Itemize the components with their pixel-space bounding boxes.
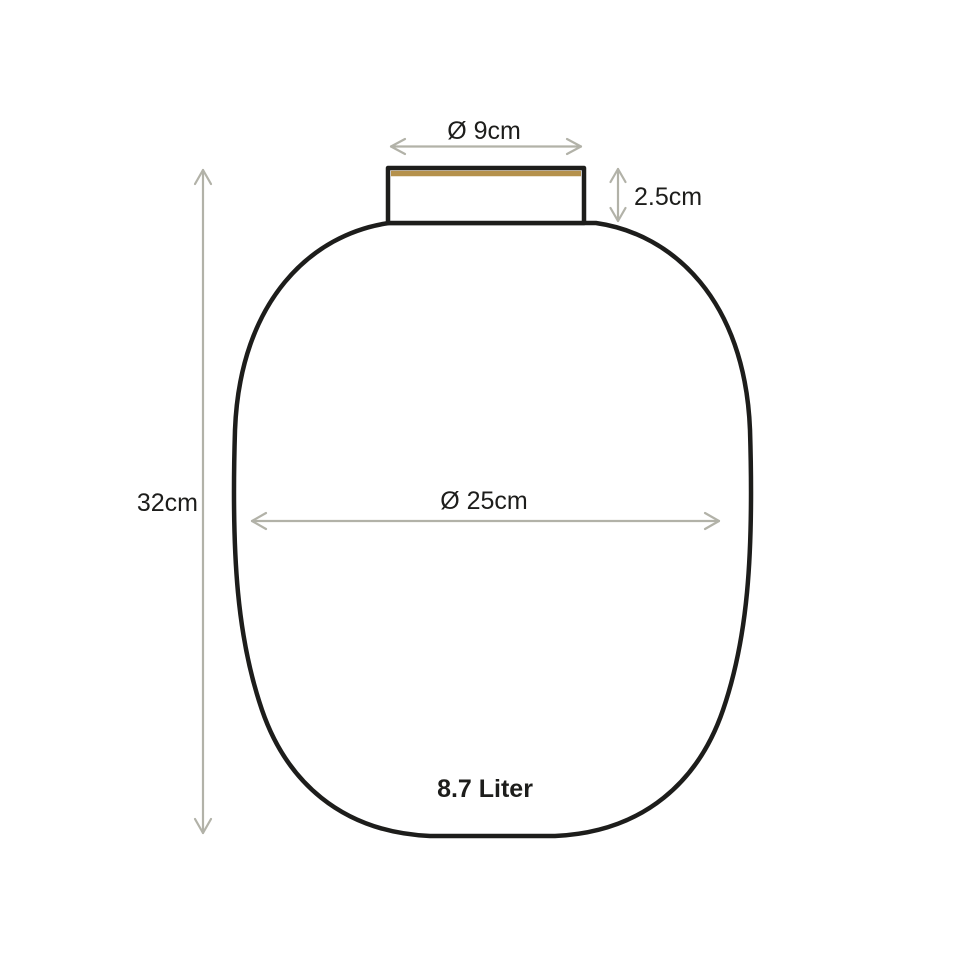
label-total-height: 32cm <box>137 489 198 517</box>
dimension-diagram: Ø 9cm 2.5cm 32cm Ø 25cm 8.7 Liter <box>0 0 960 960</box>
label-body-diameter: Ø 25cm <box>440 487 528 515</box>
vase-body-outline <box>234 223 751 836</box>
dim-arrow-neck-height <box>611 169 626 221</box>
label-top-diameter: Ø 9cm <box>447 117 521 145</box>
vase-diagram-svg: Ø 9cm 2.5cm 32cm Ø 25cm 8.7 Liter <box>0 0 960 960</box>
label-volume: 8.7 Liter <box>437 775 533 803</box>
label-neck-height: 2.5cm <box>634 183 702 211</box>
